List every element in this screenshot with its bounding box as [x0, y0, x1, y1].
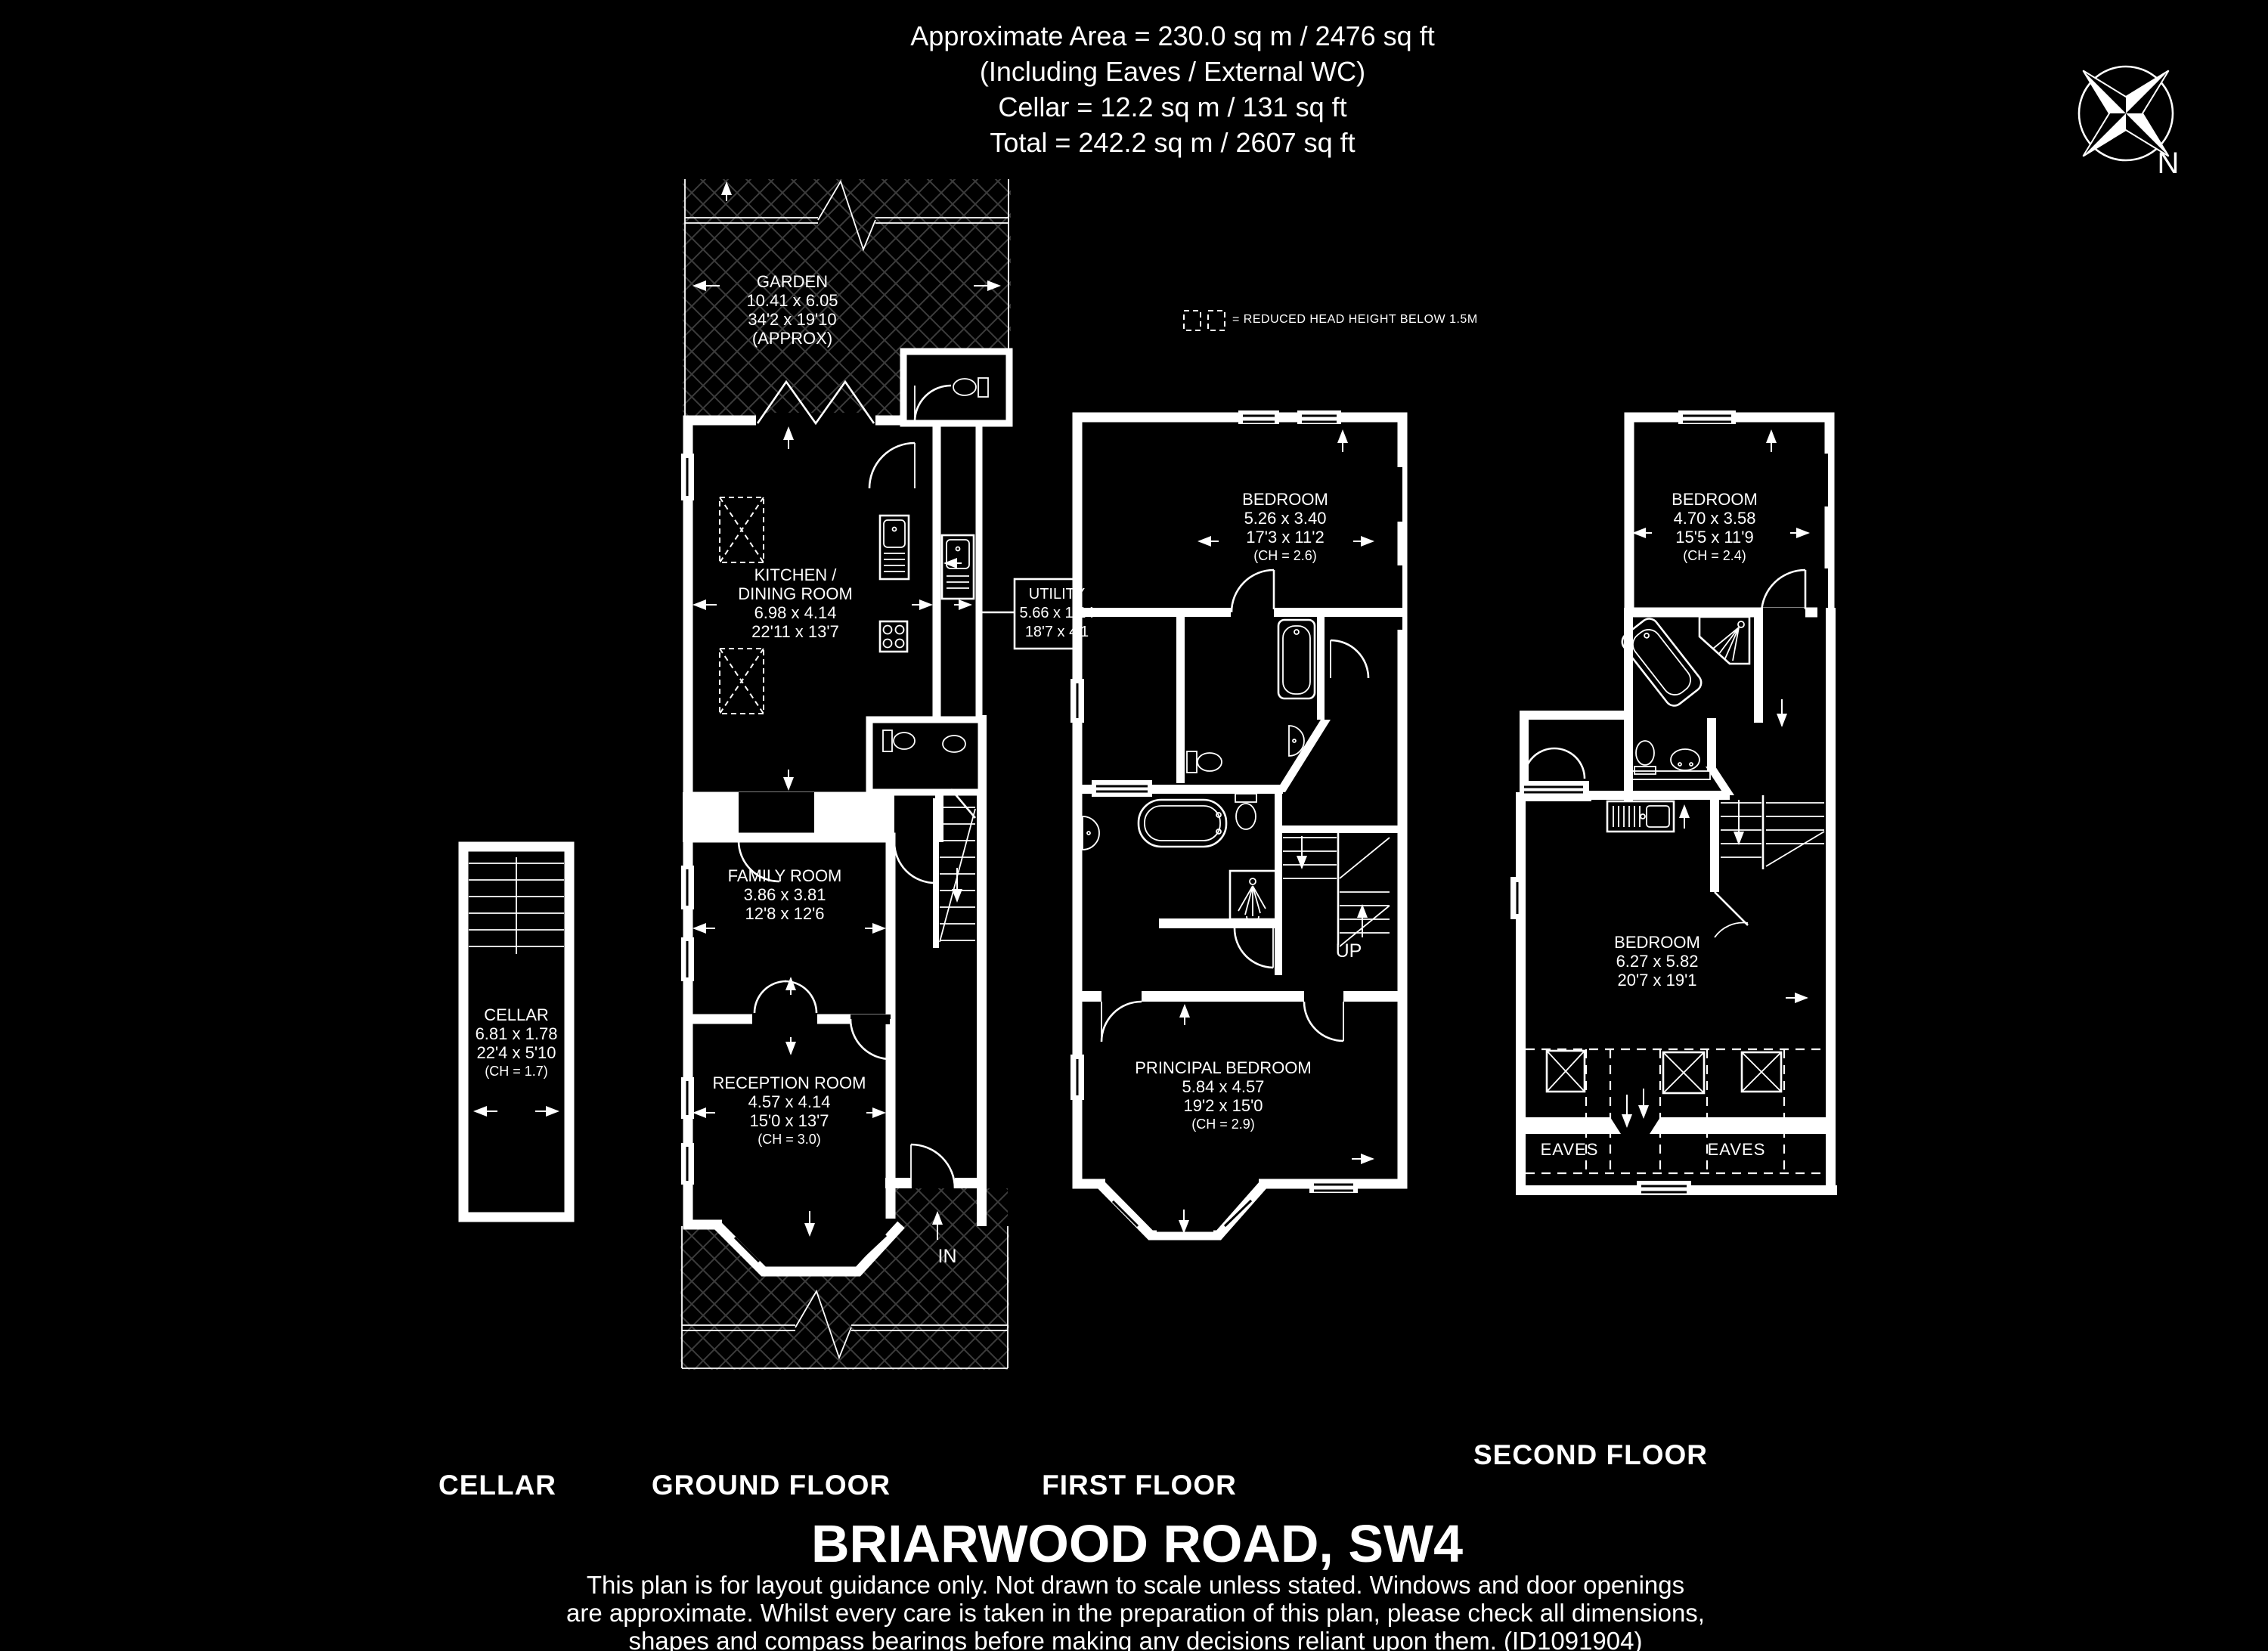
area-line: Approximate Area = 230.0 sq m / 2476 sq …: [910, 18, 1434, 54]
room-label-kitchen: KITCHEN / DINING ROOM 6.98 x 4.14 22'11 …: [738, 565, 853, 641]
reduced-head-height-icon: [1184, 311, 1225, 330]
room-label-bedroom-first: BEDROOM 5.26 x 3.40 17'3 x 11'2 (CH = 2.…: [1242, 490, 1328, 565]
room-label-utility: UTILITY 5.66 x 1.24 18'7 x 4'1: [1020, 585, 1095, 642]
room-label-bedroom-second-front: BEDROOM 4.70 x 3.58 15'5 x 11'9 (CH = 2.…: [1672, 490, 1758, 565]
entrance-in-label: IN: [938, 1246, 957, 1268]
room-label-bedroom-second-rear: BEDROOM 6.27 x 5.82 20'7 x 19'1: [1614, 933, 1700, 990]
area-line: Total = 242.2 sq m / 2607 sq ft: [910, 125, 1434, 160]
area-summary: Approximate Area = 230.0 sq m / 2476 sq …: [910, 18, 1434, 160]
external-wc: [903, 352, 1009, 423]
disclaimer: This plan is for layout guidance only. N…: [566, 1571, 1705, 1651]
eaves-label-left: EAVES: [1541, 1140, 1599, 1160]
page-title: BRIARWOOD ROAD, SW4: [811, 1513, 1463, 1574]
floor-label-first: FIRST FLOOR: [1042, 1470, 1237, 1501]
room-label-reception-room: RECEPTION ROOM 4.57 x 4.14 15'0 x 13'7 (…: [713, 1073, 866, 1149]
room-label-principal-bedroom: PRINCIPAL BEDROOM 5.84 x 4.57 19'2 x 15'…: [1135, 1058, 1311, 1134]
stairs-up-label: UP: [1336, 940, 1362, 962]
floor-label-second: SECOND FLOOR: [1473, 1439, 1708, 1471]
floorplan-graphics: [0, 0, 2268, 1651]
compass-north-label: N: [2158, 147, 2180, 181]
room-label-cellar: CELLAR 6.81 x 1.78 22'4 x 5'10 (CH = 1.7…: [476, 1005, 558, 1081]
area-line: (Including Eaves / External WC): [910, 54, 1434, 89]
area-line: Cellar = 12.2 sq m / 131 sq ft: [910, 89, 1434, 125]
eaves-label-right: EAVES: [1708, 1140, 1766, 1160]
floor-label-ground: GROUND FLOOR: [652, 1470, 891, 1501]
floorplan-page: Approximate Area = 230.0 sq m / 2476 sq …: [0, 0, 2268, 1651]
legend-text: = REDUCED HEAD HEIGHT BELOW 1.5M: [1232, 313, 1478, 327]
room-label-garden: GARDEN 10.41 x 6.05 34'2 x 19'10 (APPROX…: [746, 272, 838, 348]
family-room: [688, 838, 891, 1019]
ground-floor-plan: [680, 179, 1100, 1370]
floor-label-cellar: CELLAR: [438, 1470, 556, 1501]
room-label-family-room: FAMILY ROOM 3.86 x 3.81 12'8 x 12'6: [728, 866, 842, 923]
